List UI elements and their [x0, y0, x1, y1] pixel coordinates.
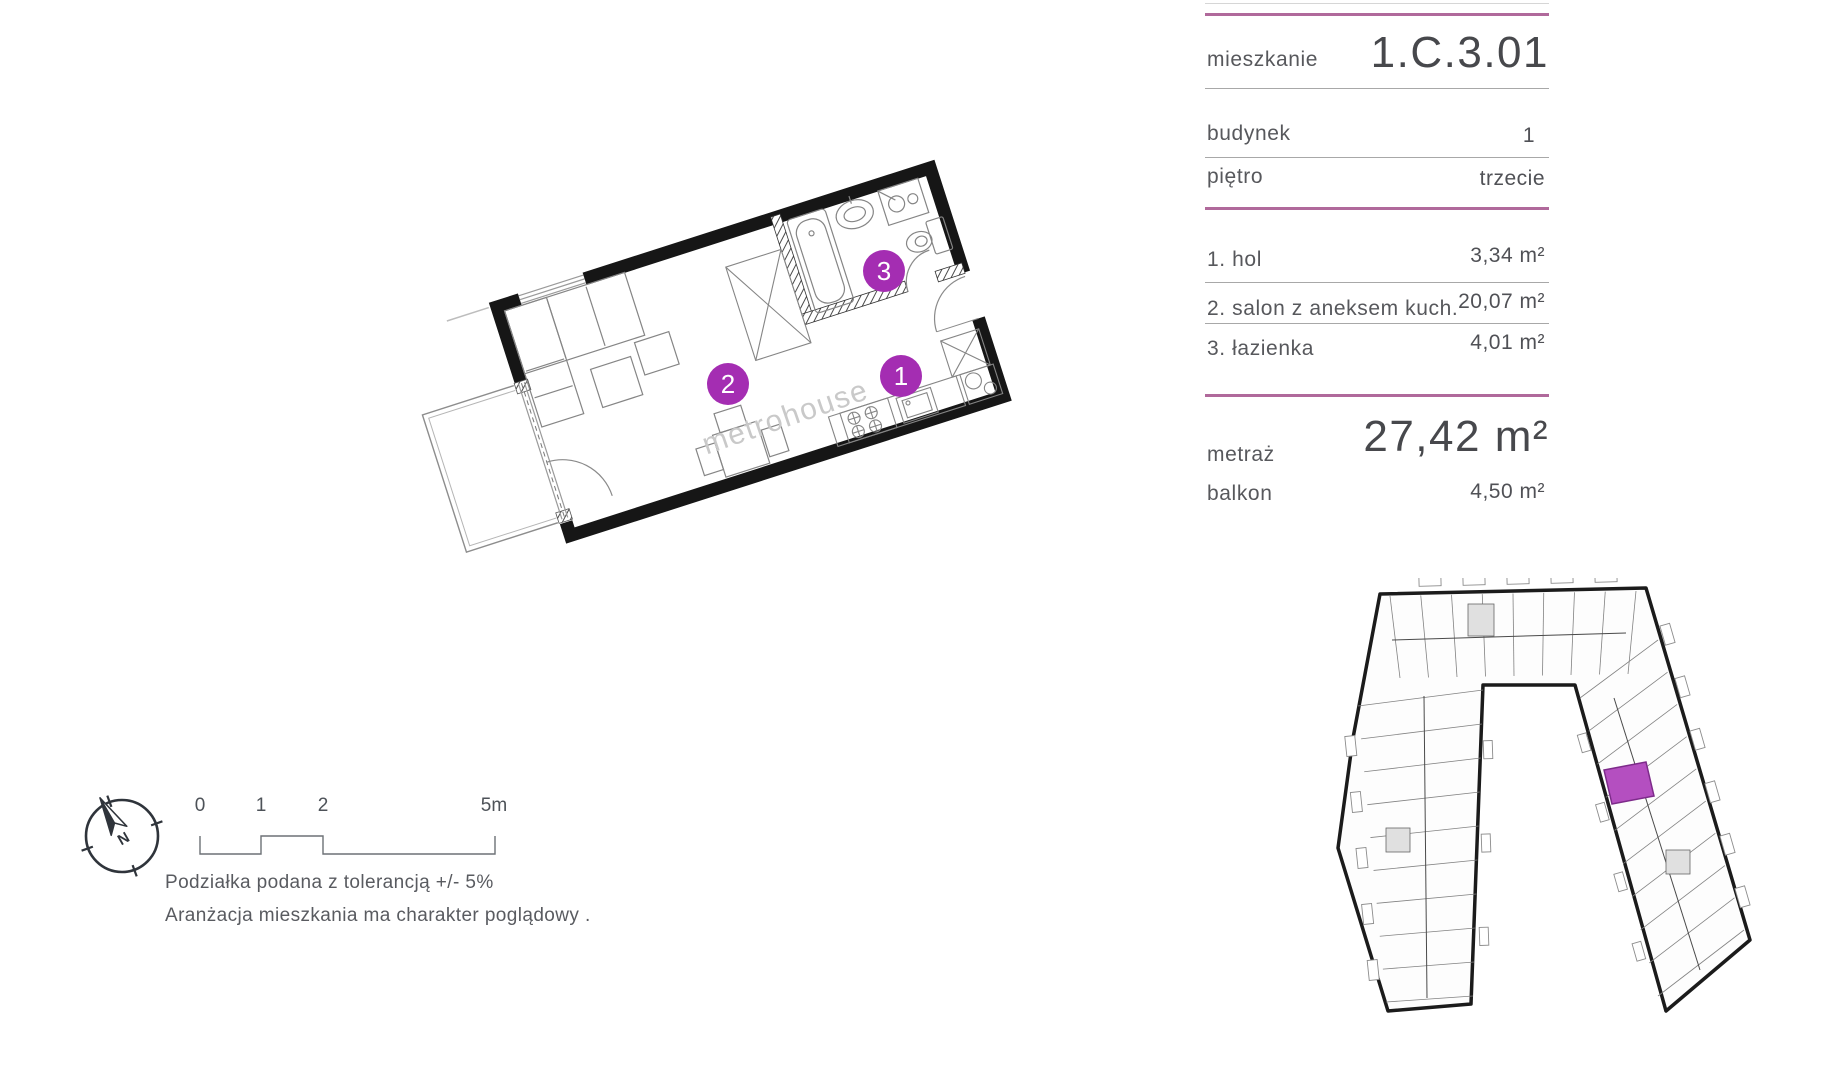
compass-north-label: N	[115, 829, 133, 849]
scale-tick-2: 2	[318, 795, 329, 817]
room-marker-label: 1	[894, 361, 908, 392]
floorplan-card-page: 1 2 3 metrohouse mieszkanie 1.C.3.01 bud…	[0, 0, 1828, 1080]
room-marker-salon[interactable]: 2	[707, 363, 749, 405]
total-area-label: metraż	[1207, 443, 1275, 467]
unit-info-panel: mieszkanie 1.C.3.01 budynek 1 piętro trz…	[1205, 0, 1549, 520]
scale-tick-5m: 5m	[481, 795, 507, 817]
arrangement-note: Aranżacja mieszkania ma charakter pogląd…	[165, 905, 591, 927]
balcony-mark	[1551, 578, 1573, 583]
divider	[1205, 323, 1549, 324]
balcony-mark	[1595, 578, 1617, 582]
apartment-number: 1.C.3.01	[1371, 28, 1549, 78]
divider-accent	[1205, 394, 1549, 397]
balcony-mark	[1632, 941, 1646, 961]
floor-value: trzecie	[1480, 167, 1545, 191]
room-row-name: 3. łazienka	[1207, 337, 1314, 361]
divider-accent	[1205, 207, 1549, 210]
balcony-mark	[1356, 848, 1368, 869]
divider	[1205, 88, 1549, 89]
room-row-name: 2. salon z aneksem kuch.	[1207, 297, 1458, 321]
building-outline	[1338, 588, 1750, 1011]
room-marker-bathroom[interactable]: 3	[863, 250, 905, 292]
scale-tick-0: 0	[195, 795, 206, 817]
balcony-mark	[1481, 834, 1491, 852]
balcony-label: balkon	[1207, 482, 1272, 506]
balcony-value: 4,50 m²	[1470, 480, 1545, 504]
outer-walls	[497, 168, 1004, 536]
divider	[1205, 3, 1549, 4]
divider	[1205, 157, 1549, 158]
balcony-mark	[1483, 741, 1493, 759]
balcony-mark	[1362, 904, 1374, 925]
balcony-mark	[1350, 792, 1362, 813]
balcony-mark	[1345, 736, 1357, 757]
floor-label: piętro	[1207, 165, 1263, 189]
building-value: 1	[1523, 124, 1535, 148]
room-row-area: 4,01 m²	[1470, 331, 1545, 355]
divider	[1205, 282, 1549, 283]
balcony-mark	[1463, 578, 1485, 585]
balcony-mark	[1367, 960, 1379, 981]
building-key-plan	[1328, 578, 1758, 1023]
scale-bar	[165, 826, 525, 866]
room-row-area: 3,34 m²	[1470, 244, 1545, 268]
room-row-name: 1. hol	[1207, 248, 1262, 272]
scale-note: Podziałka podana z tolerancją +/- 5%	[165, 872, 494, 894]
scale-tick-1: 1	[256, 795, 267, 817]
divider-accent	[1205, 13, 1549, 16]
room-row-area: 20,07 m²	[1458, 290, 1545, 314]
room-marker-label: 2	[721, 369, 735, 400]
building-label: budynek	[1207, 122, 1291, 146]
balcony-mark	[1419, 578, 1441, 586]
total-area-value: 27,42 m²	[1363, 412, 1549, 462]
neighbour-wall-line	[447, 308, 489, 321]
apartment-label: mieszkanie	[1207, 48, 1318, 72]
room-marker-label: 3	[877, 256, 891, 287]
balcony-mark	[1479, 927, 1489, 945]
compass-icon: N	[76, 788, 172, 888]
room-marker-hall[interactable]: 1	[880, 355, 922, 397]
balcony-mark	[1507, 578, 1529, 584]
apartment-floorplan	[370, 100, 1050, 570]
highlighted-unit[interactable]	[1604, 762, 1654, 804]
balcony-mark	[1614, 872, 1628, 892]
